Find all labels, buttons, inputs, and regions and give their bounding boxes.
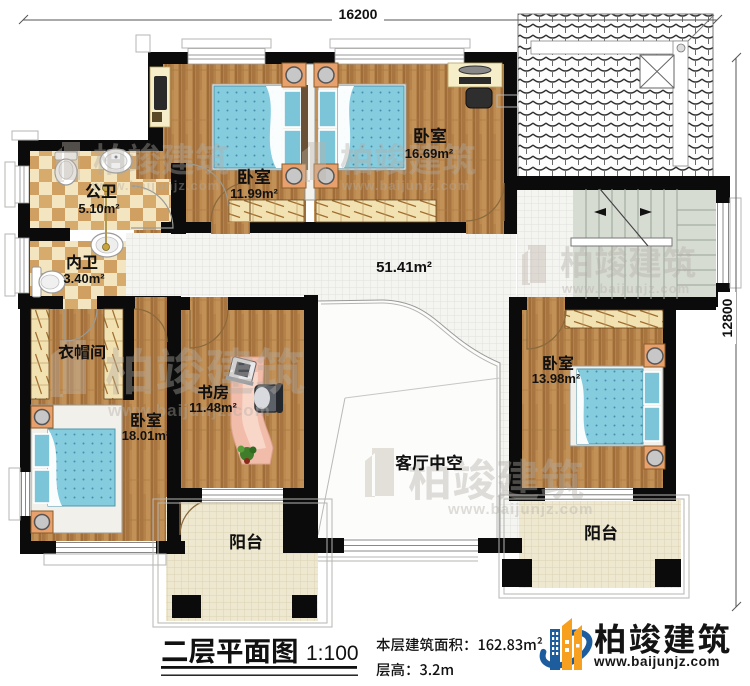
svg-text:3.40m²: 3.40m² [63,271,105,286]
svg-text:18.01m²: 18.01m² [122,428,171,443]
svg-text:13.98m²: 13.98m² [532,371,581,386]
svg-text:5.10m²: 5.10m² [78,201,120,216]
svg-text:16200: 16200 [339,6,378,22]
svg-text:www.baijunjz.com: www.baijunjz.com [341,178,470,193]
svg-text:11.99m²: 11.99m² [230,186,278,201]
svg-text:www.baijunjz.com: www.baijunjz.com [593,654,720,669]
svg-text:51.41m²: 51.41m² [376,259,432,276]
svg-text:11.48m²: 11.48m² [189,400,237,415]
svg-text:1:100: 1:100 [306,642,359,665]
svg-text:12800: 12800 [719,298,735,337]
svg-text:16.69m²: 16.69m² [405,146,454,161]
svg-text:www.baijunjz.com: www.baijunjz.com [561,281,690,296]
svg-text:www.baijunjz.com: www.baijunjz.com [447,501,593,518]
